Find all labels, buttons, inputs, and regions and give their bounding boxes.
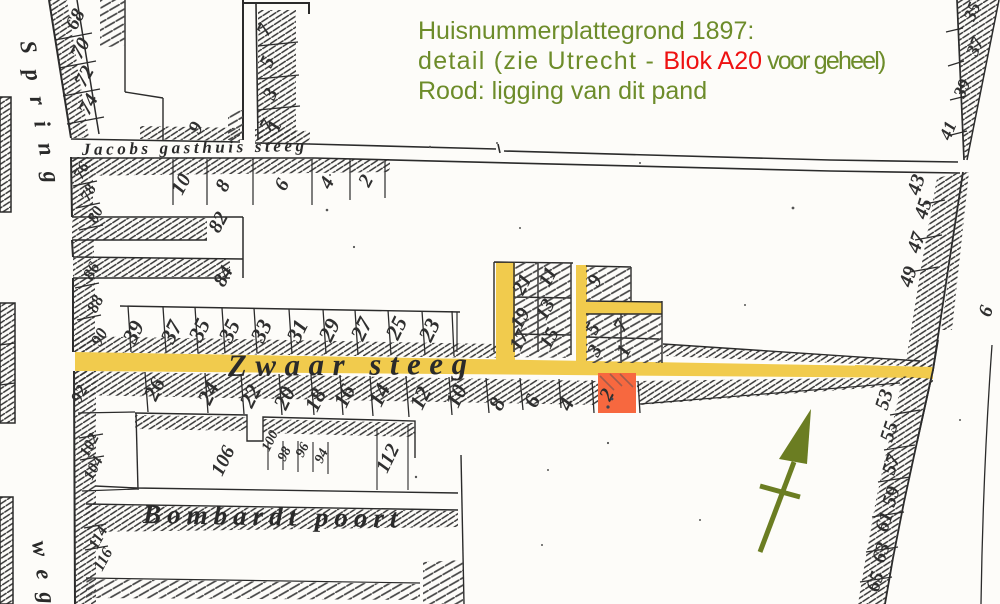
svg-text:Huisnummerplattegrond 1897:: Huisnummerplattegrond 1897:: [418, 17, 754, 45]
svg-text:Rood: ligging van dit pand: Rood: ligging van dit pand: [418, 77, 707, 105]
svg-text:detail (zie Utrecht - Blok A20: detail (zie Utrecht - Blok A20 voor gehe…: [418, 47, 885, 75]
svg-text:Bombardt poort: Bombardt poort: [142, 499, 404, 534]
svg-text:Zwaar steeg: Zwaar steeg: [227, 346, 476, 383]
